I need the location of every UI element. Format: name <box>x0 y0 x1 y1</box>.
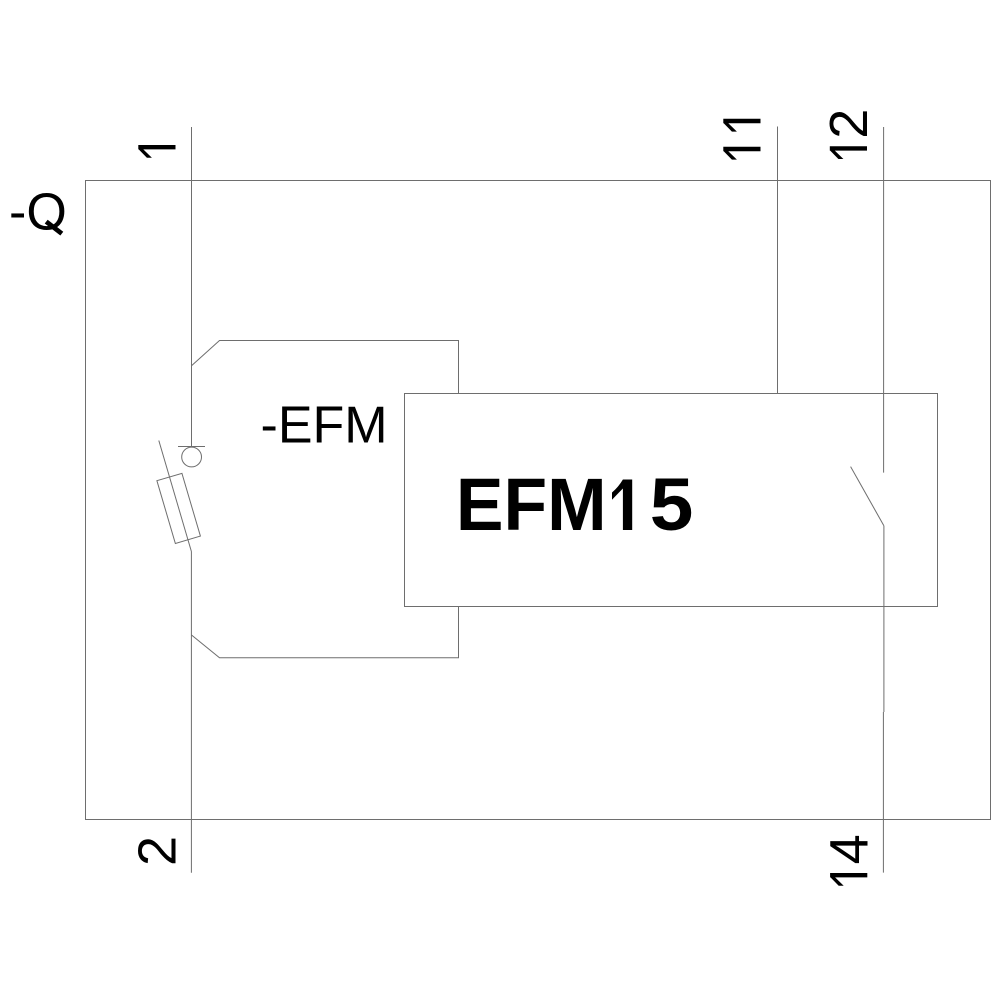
svg-text:2: 2 <box>127 836 187 866</box>
svg-text:2: 2 <box>819 109 879 139</box>
svg-text:EFM: EFM <box>456 464 607 546</box>
svg-text:5: 5 <box>650 464 694 546</box>
svg-text:4: 4 <box>820 834 880 864</box>
svg-text:-EFM: -EFM <box>261 397 388 455</box>
